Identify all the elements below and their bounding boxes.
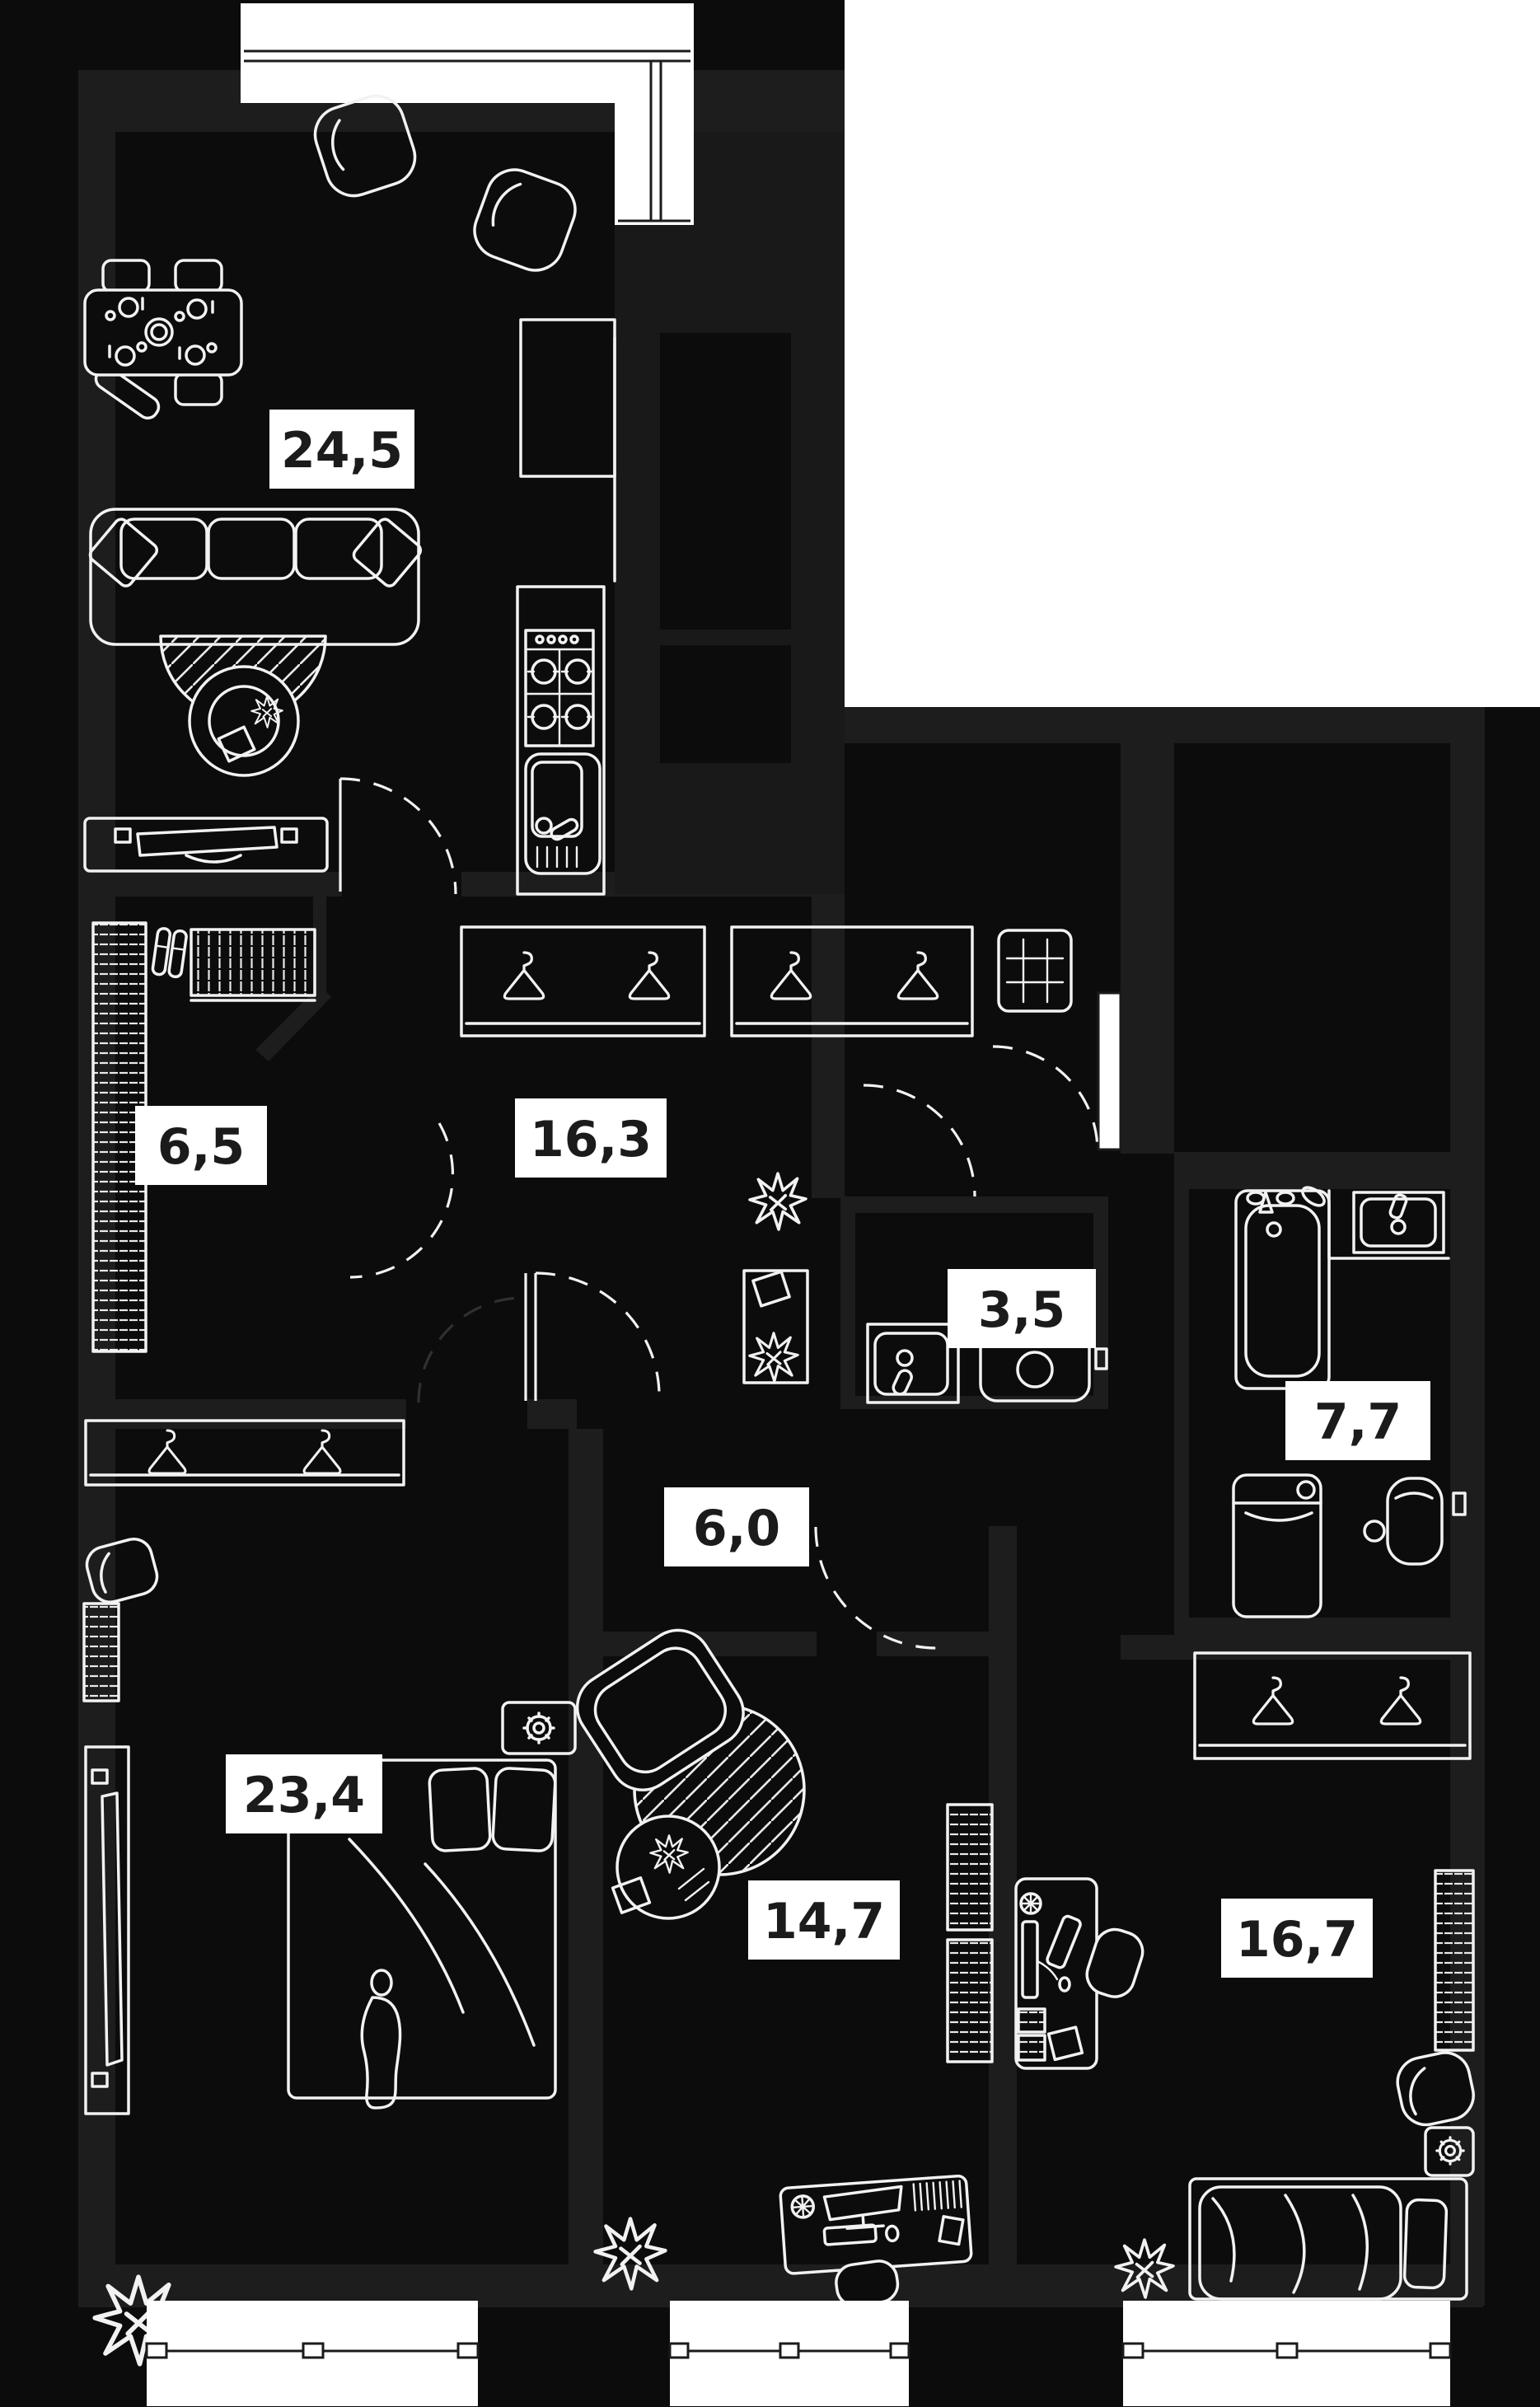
room-area-label: 14,7 [748, 1880, 900, 1960]
window [670, 2301, 909, 2406]
room-area-label: 23,4 [226, 1754, 382, 1833]
area-value: 16,7 [1236, 1911, 1358, 1969]
area-value: 6,0 [693, 1500, 780, 1557]
service-shafts [615, 132, 845, 894]
floor-plan: 24,5 6,5 16,3 3,5 7,7 6,0 23,4 14,7 [0, 0, 1540, 2407]
area-value: 24,5 [281, 422, 403, 480]
window [147, 2301, 478, 2406]
room-area-label: 24,5 [269, 410, 414, 489]
area-value: 23,4 [243, 1767, 365, 1824]
shelf-icon [1435, 1871, 1473, 2050]
shelf-icon [948, 1805, 992, 1930]
desk-chair-icon [834, 2259, 900, 2308]
window [1123, 2301, 1450, 2406]
area-value: 14,7 [763, 1893, 885, 1950]
area-value: 3,5 [978, 1281, 1065, 1339]
room-area-label: 7,7 [1285, 1381, 1430, 1460]
windows [147, 2301, 1450, 2406]
floor-plan-page: 24,5 6,5 16,3 3,5 7,7 6,0 23,4 14,7 [0, 0, 1540, 2407]
coffee-table [190, 667, 298, 775]
clothes-rail-icon [191, 930, 315, 995]
area-value: 7,7 [1314, 1393, 1402, 1451]
room-area-label: 6,0 [664, 1487, 809, 1566]
dresser-icon [84, 1604, 119, 1701]
outside-area [845, 0, 1540, 707]
shelf-icon [948, 1940, 992, 2062]
area-value: 6,5 [157, 1118, 245, 1176]
room-area-label: 6,5 [135, 1106, 267, 1185]
room-area-label: 3,5 [948, 1269, 1096, 1348]
area-value: 16,3 [530, 1111, 652, 1168]
room-area-label: 16,7 [1221, 1899, 1373, 1978]
room-area-label: 16,3 [515, 1098, 667, 1178]
